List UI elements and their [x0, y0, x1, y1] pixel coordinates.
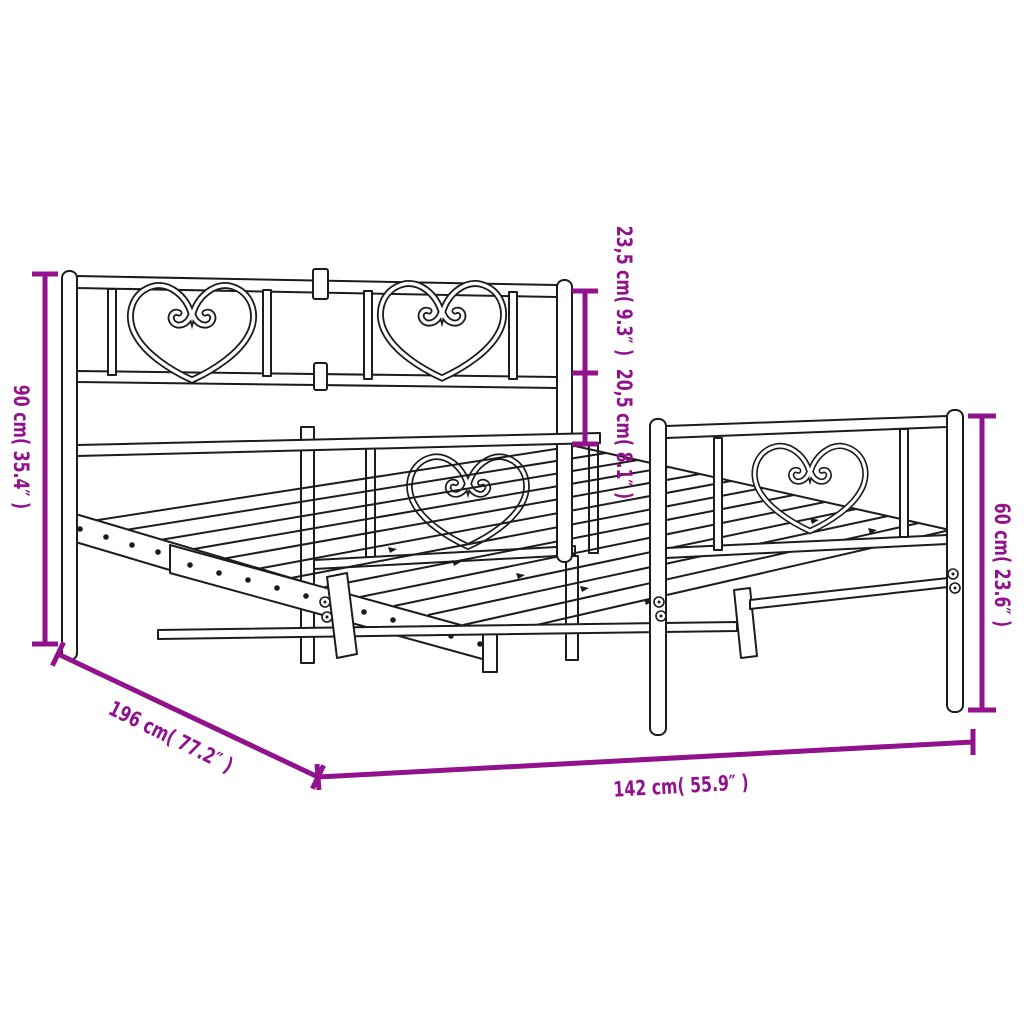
center-bracket: [313, 269, 328, 299]
inner-spindle: [589, 443, 598, 553]
footboard-support-bar: [750, 578, 948, 609]
headboard-spindle: [509, 292, 517, 379]
heart-motif-icon: [380, 284, 503, 378]
heart-motif-icon: [130, 286, 253, 380]
dimension-line-headboard-sections: [572, 291, 598, 444]
headboard-spindle: [108, 289, 116, 375]
headboard-left-post: [62, 271, 77, 660]
rail-end-bracket: [483, 632, 497, 672]
dimension-line-headboard-height: [32, 274, 58, 644]
headboard-spindle: [364, 291, 372, 379]
center-bracket: [314, 363, 327, 390]
footboard-lower-rail: [666, 535, 947, 558]
dimension-label-footboard-height: 60 cm( 23.6″ ): [990, 503, 1014, 627]
inner-rear-leg: [566, 556, 578, 660]
footboard-far-post: [947, 410, 963, 712]
footboard-near-post: [650, 419, 666, 735]
diagram-canvas: 90 cm( 35.4″ ) 23,5 cm( 9.3″ ) 20,5 cm( …: [0, 0, 1024, 1024]
headboard-spindle: [263, 290, 271, 376]
bed-frame-drawing: [0, 0, 1024, 1024]
dimension-label-headboard-upper-section: 23,5 cm( 9.3″ ): [612, 226, 636, 356]
footboard-center-leg: [734, 588, 757, 658]
footboard-spindle: [900, 429, 908, 537]
dimension-label-headboard-height: 90 cm( 35.4″ ): [9, 385, 33, 509]
inner-spindle: [366, 441, 375, 557]
dimension-line-frame-length: [52, 642, 323, 788]
footboard-spindle: [714, 438, 722, 550]
headboard-lower-rail: [77, 433, 600, 456]
headboard-right-post: [557, 280, 572, 562]
dimension-label-headboard-lower-section: 20,5 cm( 8.1″ ): [612, 369, 636, 499]
